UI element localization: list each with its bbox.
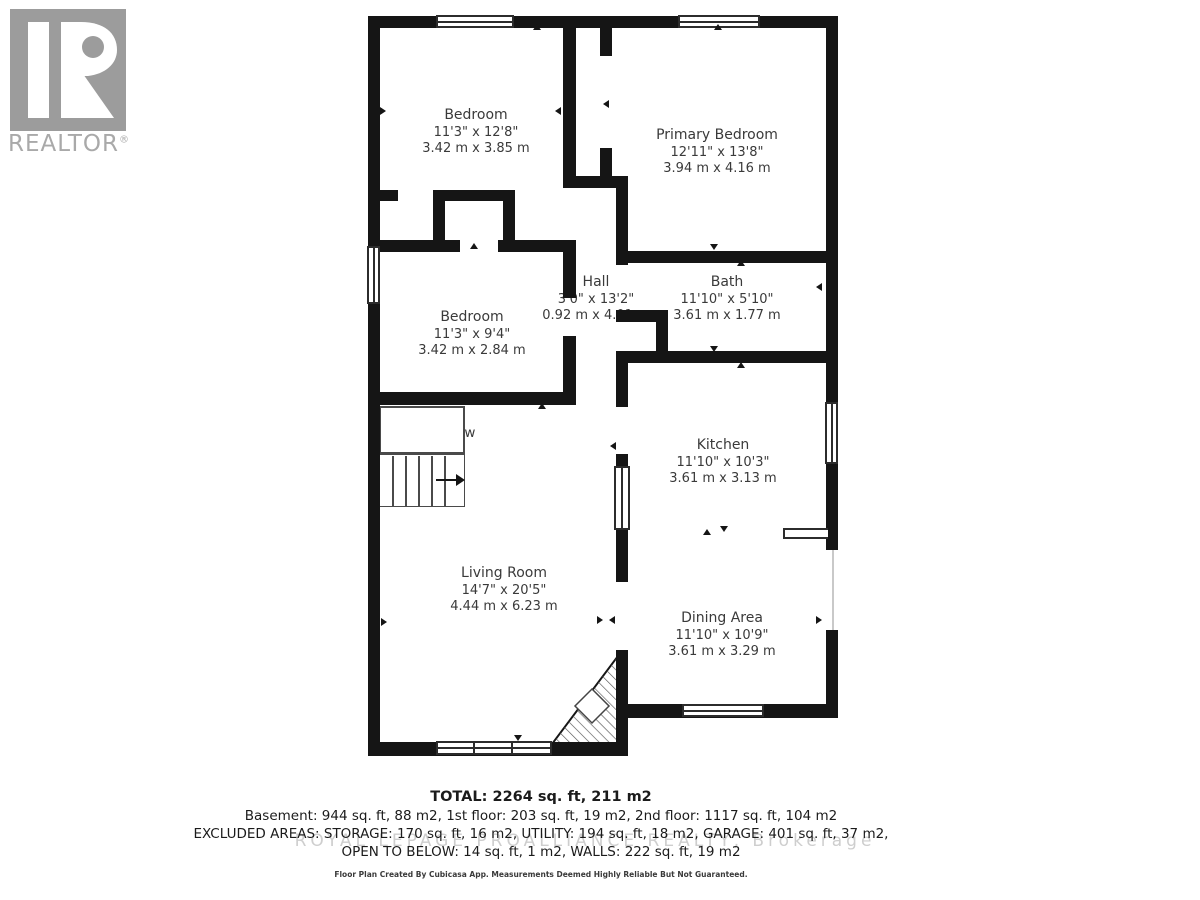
door-marker-icon bbox=[381, 618, 387, 626]
window bbox=[614, 466, 630, 530]
realtor-logo-wordmark: REALTOR® bbox=[6, 131, 132, 157]
stair-tread bbox=[444, 456, 446, 506]
window-mullion bbox=[473, 742, 475, 754]
door-marker-icon bbox=[710, 244, 718, 250]
room-dim-imperial: 12'11" x 13'8" bbox=[607, 145, 827, 161]
door-marker-icon bbox=[816, 616, 822, 624]
room-dim-imperial: 11'10" x 10'9" bbox=[612, 628, 832, 644]
disclaimer-text: Floor Plan Created By Cubicasa App. Meas… bbox=[41, 870, 1041, 879]
wall bbox=[616, 650, 628, 756]
room-label-dining-area: Dining Area 11'10" x 10'9" 3.61 m x 3.29… bbox=[612, 609, 832, 659]
room-label-bedroom-left: Bedroom 11'3" x 9'4" 3.42 m x 2.84 m bbox=[362, 308, 582, 358]
summary-total: TOTAL: 2264 sq. ft, 211 m2 bbox=[41, 789, 1041, 805]
door-marker-icon bbox=[538, 403, 546, 409]
door-marker-icon bbox=[737, 362, 745, 368]
door-marker-icon bbox=[470, 243, 478, 249]
room-name: Kitchen bbox=[613, 436, 833, 455]
door-marker-icon bbox=[714, 24, 722, 30]
wall bbox=[616, 351, 628, 407]
window bbox=[436, 741, 552, 755]
open-to-below-area bbox=[379, 406, 465, 454]
door-marker-icon bbox=[470, 392, 478, 398]
room-dim-metric: 4.44 m x 6.23 m bbox=[394, 599, 614, 615]
room-name: Bath bbox=[617, 273, 837, 292]
kitchen-counter bbox=[783, 528, 828, 539]
room-dim-metric: 3.42 m x 2.84 m bbox=[362, 343, 582, 359]
door-marker-icon bbox=[597, 616, 603, 624]
window bbox=[682, 704, 764, 717]
door-marker-icon bbox=[555, 107, 561, 115]
room-label-living-room: Living Room 14'7" x 20'5" 4.44 m x 6.23 … bbox=[394, 564, 614, 614]
wall bbox=[563, 16, 576, 188]
wall bbox=[826, 630, 838, 718]
door-marker-icon bbox=[737, 260, 745, 266]
floor-plan: REALTOR® ROYAL LEPAGE PROALLIANCE REALTY… bbox=[0, 0, 1200, 900]
summary-excluded-2: OPEN TO BELOW: 14 sq. ft, 1 m2, WALLS: 2… bbox=[41, 844, 1041, 860]
room-label-bedroom-top: Bedroom 11'3" x 12'8" 3.42 m x 3.85 m bbox=[366, 106, 586, 156]
door-marker-icon bbox=[610, 442, 616, 450]
door-marker-icon bbox=[710, 346, 718, 352]
patio-opening bbox=[832, 550, 834, 630]
wall bbox=[616, 251, 838, 263]
door-marker-icon bbox=[609, 616, 615, 624]
room-dim-metric: 3.61 m x 3.29 m bbox=[612, 644, 832, 660]
door-marker-icon bbox=[703, 529, 711, 535]
room-name: Bedroom bbox=[366, 106, 586, 125]
realtor-word: REALTOR bbox=[8, 131, 119, 157]
door-marker-icon bbox=[603, 100, 609, 108]
room-dim-imperial: 11'3" x 12'8" bbox=[366, 125, 586, 141]
wall bbox=[368, 190, 398, 201]
wall bbox=[368, 16, 380, 756]
room-name: Dining Area bbox=[612, 609, 832, 628]
wall bbox=[826, 16, 838, 550]
window bbox=[436, 15, 514, 28]
room-dim-imperial: 11'10" x 10'3" bbox=[613, 455, 833, 471]
window bbox=[367, 246, 380, 304]
room-label-kitchen: Kitchen 11'10" x 10'3" 3.61 m x 3.13 m bbox=[613, 436, 833, 486]
stair-tread bbox=[405, 456, 407, 506]
room-dim-imperial: 11'10" x 5'10" bbox=[617, 292, 837, 308]
room-dim-imperial: 14'7" x 20'5" bbox=[394, 583, 614, 599]
door-marker-icon bbox=[816, 283, 822, 291]
stairs-direction-arrow-icon bbox=[456, 474, 465, 486]
realtor-logo-icon bbox=[10, 9, 126, 131]
window-mullion bbox=[511, 742, 513, 754]
door-marker-icon bbox=[514, 735, 522, 741]
door-marker-icon bbox=[720, 526, 728, 532]
room-dim-metric: 3.61 m x 3.13 m bbox=[613, 471, 833, 487]
door-marker-icon bbox=[380, 107, 386, 115]
wall bbox=[616, 351, 838, 363]
corner-fireplace bbox=[552, 656, 618, 744]
wall bbox=[368, 240, 460, 252]
stair-tread bbox=[418, 456, 420, 506]
stairs-direction-line bbox=[436, 479, 458, 481]
window bbox=[825, 402, 838, 464]
room-name: Primary Bedroom bbox=[607, 126, 827, 145]
door-marker-icon bbox=[533, 24, 541, 30]
room-dim-metric: 3.94 m x 4.16 m bbox=[607, 161, 827, 177]
room-name: Bedroom bbox=[362, 308, 582, 327]
stair-tread bbox=[392, 456, 394, 506]
wall bbox=[600, 16, 612, 56]
room-dim-metric: 3.42 m x 3.85 m bbox=[366, 141, 586, 157]
summary-excluded-1: EXCLUDED AREAS: STORAGE: 170 sq. ft, 16 … bbox=[41, 826, 1041, 842]
registered-mark: ® bbox=[119, 134, 130, 145]
room-dim-imperial: 11'3" x 9'4" bbox=[362, 327, 582, 343]
wall bbox=[563, 240, 576, 298]
summary-floors: Basement: 944 sq. ft, 88 m2, 1st floor: … bbox=[41, 808, 1041, 824]
stair-tread bbox=[431, 456, 433, 506]
room-name: Living Room bbox=[394, 564, 614, 583]
room-label-primary-bedroom: Primary Bedroom 12'11" x 13'8" 3.94 m x … bbox=[607, 126, 827, 176]
